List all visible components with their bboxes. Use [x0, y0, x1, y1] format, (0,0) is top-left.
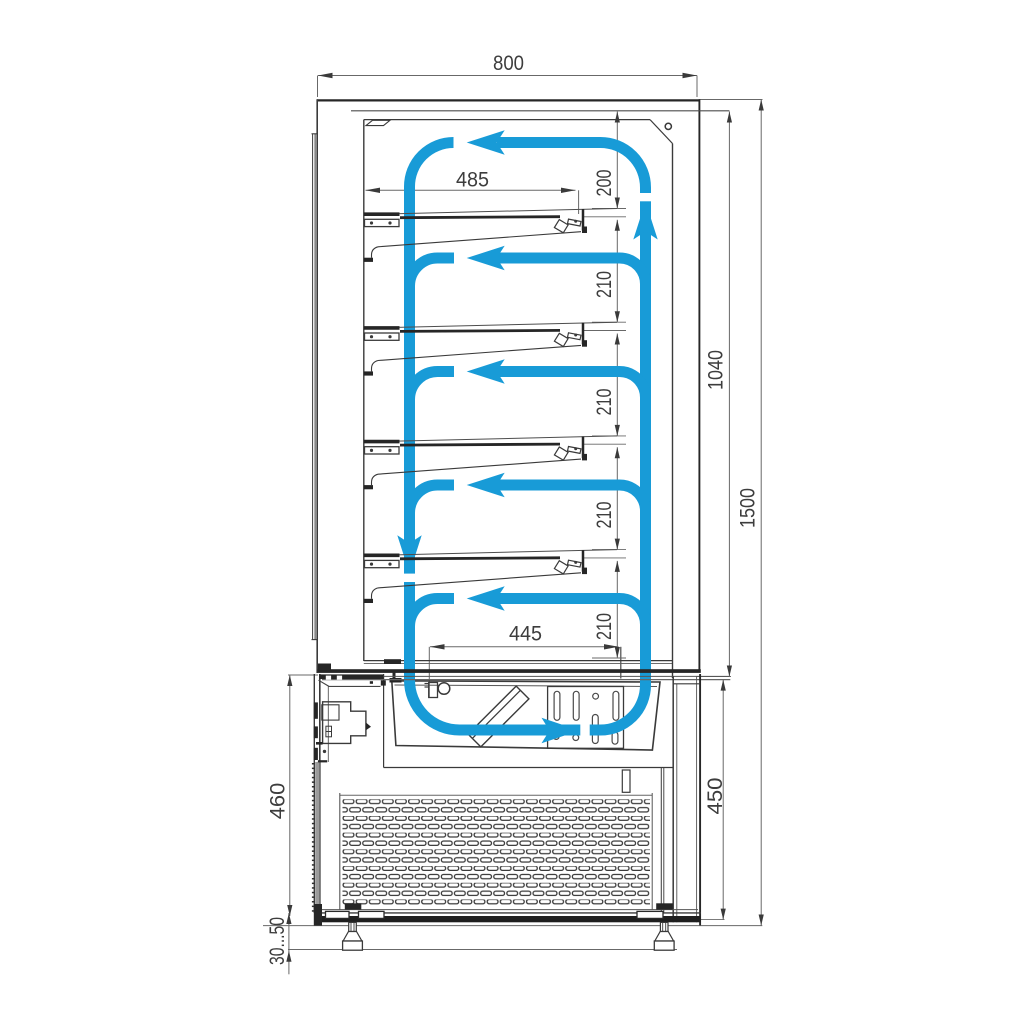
svg-text:460: 460 [267, 783, 290, 820]
svg-text:445: 445 [509, 622, 542, 645]
svg-text:210: 210 [593, 389, 616, 416]
svg-text:30...50: 30...50 [266, 917, 289, 965]
svg-text:1040: 1040 [705, 350, 728, 390]
svg-text:485: 485 [456, 169, 489, 192]
svg-text:210: 210 [593, 613, 616, 640]
svg-text:450: 450 [704, 778, 727, 815]
svg-text:1500: 1500 [737, 488, 760, 528]
svg-text:800: 800 [493, 52, 524, 75]
svg-text:210: 210 [593, 502, 616, 529]
svg-text:210: 210 [593, 271, 616, 298]
svg-text:200: 200 [593, 170, 616, 197]
